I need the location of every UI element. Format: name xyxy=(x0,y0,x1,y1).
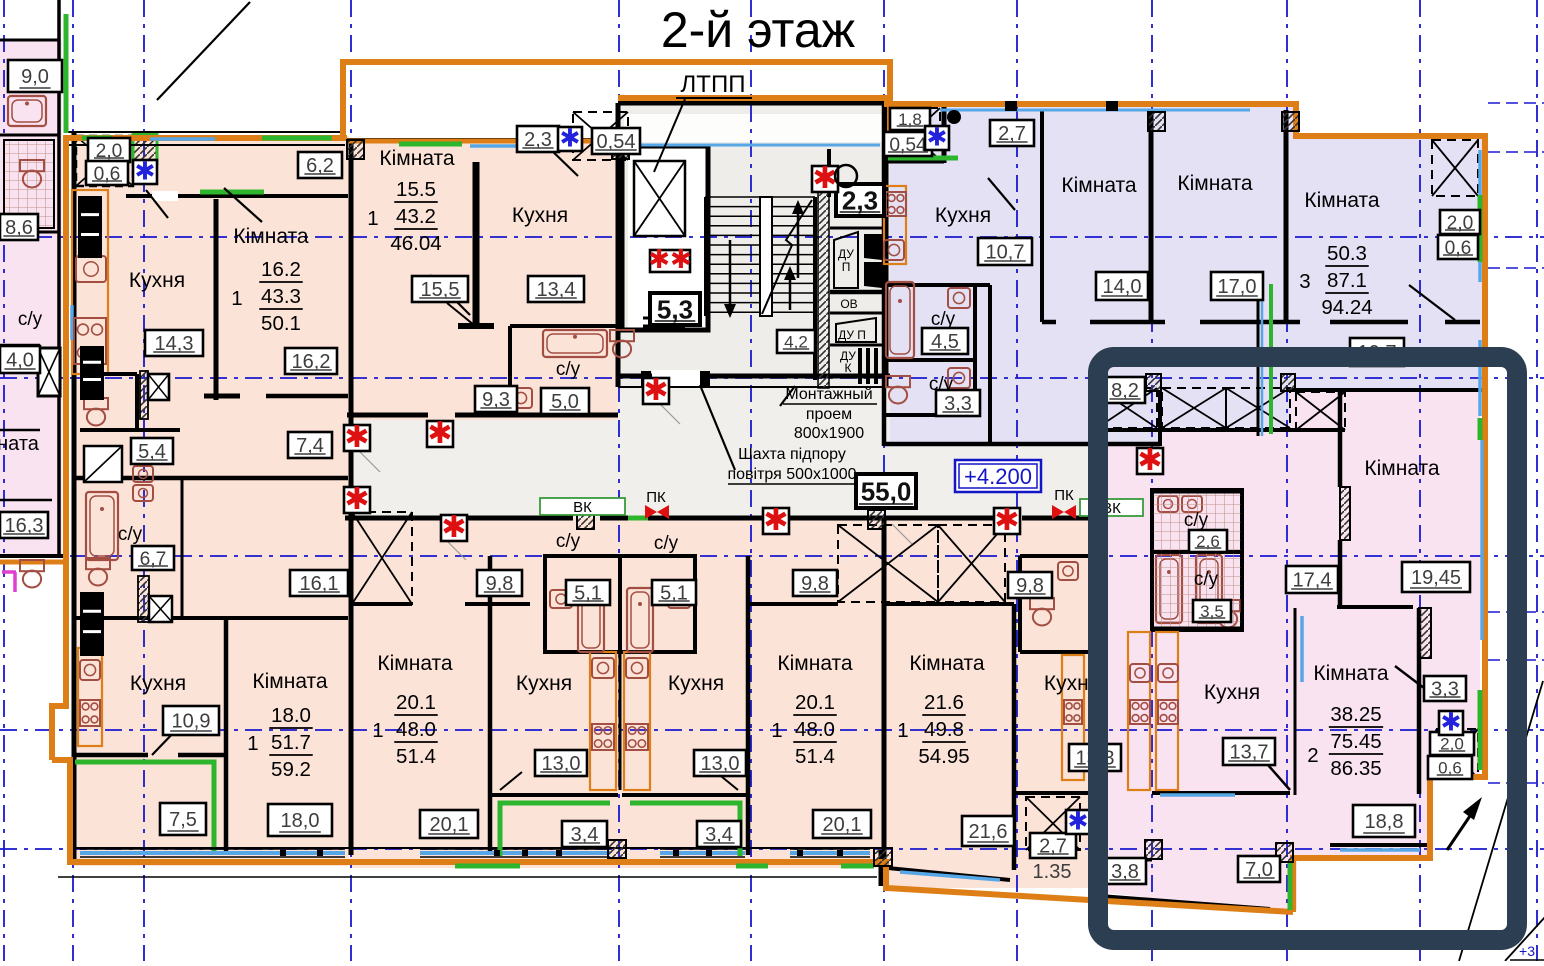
svg-text:2,3: 2,3 xyxy=(842,185,878,215)
svg-text:с/у: с/у xyxy=(654,533,679,554)
svg-text:ДУ П: ДУ П xyxy=(838,328,866,342)
svg-text:3: 3 xyxy=(1299,270,1310,293)
svg-text:Кухня: Кухня xyxy=(935,204,991,227)
svg-text:1.35: 1.35 xyxy=(1033,861,1072,883)
svg-text:43.3: 43.3 xyxy=(261,285,301,308)
svg-text:Кімната: Кімната xyxy=(379,147,455,170)
svg-text:21.6: 21.6 xyxy=(924,691,964,714)
svg-text:9,0: 9,0 xyxy=(21,66,49,88)
svg-text:43.2: 43.2 xyxy=(396,205,436,228)
svg-text:2-й этаж: 2-й этаж xyxy=(661,2,856,58)
svg-text:48.0: 48.0 xyxy=(396,718,436,741)
svg-text:Кухня: Кухня xyxy=(1204,681,1260,704)
svg-text:20,1: 20,1 xyxy=(430,814,469,836)
svg-text:✱: ✱ xyxy=(135,158,156,186)
svg-text:14,0: 14,0 xyxy=(1103,276,1142,298)
svg-text:51.4: 51.4 xyxy=(396,745,436,768)
svg-text:повітря 500х1000: повітря 500х1000 xyxy=(727,466,856,483)
svg-text:50.1: 50.1 xyxy=(261,312,301,335)
svg-text:59.2: 59.2 xyxy=(271,758,311,781)
svg-text:с/у: с/у xyxy=(1184,510,1209,531)
svg-text:✱: ✱ xyxy=(812,162,837,195)
svg-text:Кімната: Кімната xyxy=(1061,174,1137,197)
svg-text:Шахта підпору: Шахта підпору xyxy=(738,446,846,463)
svg-text:1: 1 xyxy=(231,287,242,310)
svg-text:ЛТПП: ЛТПП xyxy=(681,71,746,98)
svg-text:✱: ✱ xyxy=(994,504,1019,537)
svg-text:Кімната: Кімната xyxy=(233,225,309,248)
svg-text:К: К xyxy=(845,361,852,375)
svg-text:с/у: с/у xyxy=(18,309,43,330)
svg-text:54.95: 54.95 xyxy=(918,745,969,768)
svg-text:+3: +3 xyxy=(1519,943,1535,959)
svg-text:46.04: 46.04 xyxy=(390,232,441,255)
svg-text:38.25: 38.25 xyxy=(1330,703,1381,726)
svg-text:18,0: 18,0 xyxy=(281,810,320,832)
svg-text:✱: ✱ xyxy=(763,504,788,537)
svg-text:Кухня: Кухня xyxy=(129,269,185,292)
svg-text:87.1: 87.1 xyxy=(1327,269,1367,292)
svg-text:Кімната: Кімната xyxy=(252,670,328,693)
svg-text:Кухня: Кухня xyxy=(512,204,568,227)
svg-text:Монтажный: Монтажный xyxy=(785,386,872,403)
svg-text:50.3: 50.3 xyxy=(1327,242,1367,265)
svg-text:20.1: 20.1 xyxy=(396,691,436,714)
svg-text:✱: ✱ xyxy=(1441,709,1462,737)
svg-text:55,0: 55,0 xyxy=(861,476,912,506)
svg-text:с/у: с/у xyxy=(556,359,581,380)
svg-text:Кімната: Кімната xyxy=(909,652,985,675)
svg-text:✱: ✱ xyxy=(344,421,369,454)
svg-text:2: 2 xyxy=(1307,744,1318,767)
svg-text:ната: ната xyxy=(0,433,40,455)
svg-text:48.0: 48.0 xyxy=(795,718,835,741)
svg-text:ПК: ПК xyxy=(1054,487,1074,504)
svg-text:ВК: ВК xyxy=(573,499,592,516)
svg-text:21,6: 21,6 xyxy=(969,821,1008,843)
svg-text:ОВ: ОВ xyxy=(840,297,857,311)
svg-text:✱: ✱ xyxy=(441,511,466,544)
svg-text:✱: ✱ xyxy=(344,483,369,516)
svg-text:с/у: с/у xyxy=(556,531,581,552)
svg-text:20,1: 20,1 xyxy=(823,814,862,836)
svg-text:1: 1 xyxy=(367,207,378,230)
svg-text:10,9: 10,9 xyxy=(172,711,211,733)
svg-text:18.0: 18.0 xyxy=(271,704,311,727)
svg-text:7,5: 7,5 xyxy=(169,809,197,831)
svg-text:✱: ✱ xyxy=(1068,808,1089,836)
svg-text:17,0: 17,0 xyxy=(1218,276,1257,298)
svg-text:5,3: 5,3 xyxy=(657,294,693,324)
svg-text:с/у: с/у xyxy=(118,524,143,545)
svg-text:1: 1 xyxy=(247,732,258,755)
svg-text:Кімната: Кімната xyxy=(1304,189,1380,212)
svg-text:49.8: 49.8 xyxy=(924,718,964,741)
svg-text:Кімната: Кімната xyxy=(377,652,453,675)
svg-text:ПК: ПК xyxy=(646,489,666,506)
svg-text:✱: ✱ xyxy=(927,124,948,152)
svg-text:Кухня: Кухня xyxy=(668,672,724,695)
svg-text:с/у: с/у xyxy=(1194,569,1219,590)
svg-text:Кімната: Кімната xyxy=(1313,662,1389,685)
svg-text:Кімната: Кімната xyxy=(1364,457,1440,480)
svg-text:✱: ✱ xyxy=(643,374,668,407)
svg-text:1: 1 xyxy=(771,719,782,742)
svg-text:20.1: 20.1 xyxy=(795,691,835,714)
svg-text:51.4: 51.4 xyxy=(795,745,835,768)
svg-text:94.24: 94.24 xyxy=(1321,296,1372,319)
svg-text:Кімната: Кімната xyxy=(777,652,853,675)
svg-text:✱✱: ✱✱ xyxy=(648,244,692,274)
svg-text:✱: ✱ xyxy=(1137,444,1162,477)
svg-text:✱: ✱ xyxy=(427,417,452,450)
svg-text:800х1900: 800х1900 xyxy=(794,425,864,442)
svg-text:П: П xyxy=(842,260,851,274)
svg-text:Кухня: Кухня xyxy=(130,672,186,695)
svg-text:1: 1 xyxy=(372,719,383,742)
svg-text:15.5: 15.5 xyxy=(396,178,436,201)
svg-text:Кімната: Кімната xyxy=(1177,172,1253,195)
svg-text:✱: ✱ xyxy=(560,125,581,153)
svg-text:16.2: 16.2 xyxy=(261,258,301,281)
svg-text:Кухня: Кухня xyxy=(516,672,572,695)
svg-text:ДУ: ДУ xyxy=(838,247,854,261)
svg-text:18,8: 18,8 xyxy=(1365,811,1404,833)
svg-text:51.7: 51.7 xyxy=(271,731,311,754)
svg-text:+4.200: +4.200 xyxy=(964,464,1032,489)
svg-text:19,45: 19,45 xyxy=(1411,567,1461,589)
svg-text:1: 1 xyxy=(897,719,908,742)
svg-text:86.35: 86.35 xyxy=(1330,757,1381,780)
svg-text:75.45: 75.45 xyxy=(1330,730,1381,753)
svg-text:проем: проем xyxy=(806,406,852,423)
